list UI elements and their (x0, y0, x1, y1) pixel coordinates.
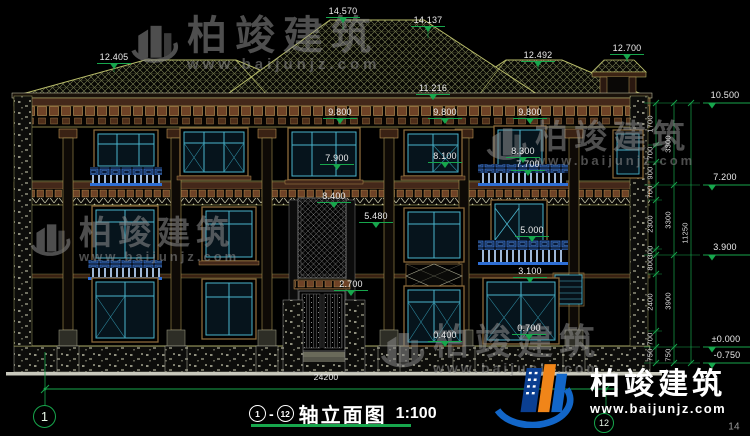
dimension-label: 24200 (314, 372, 339, 382)
window-3f-left (90, 130, 162, 186)
stair-window-lower (404, 286, 464, 346)
entrance-door (299, 291, 345, 351)
axis-bubble-1-label: 1 (41, 409, 48, 424)
title-scale: 1:100 (396, 405, 437, 423)
title-axis-from-bubble: 1 (249, 405, 266, 422)
brand-logo-icon (488, 356, 584, 428)
dimension-label: 9.800 (518, 107, 542, 117)
dimension-label: 0.700 (517, 323, 541, 333)
title-dash: - (269, 406, 274, 422)
window-2f-right (478, 200, 568, 265)
dimension-label: 2300 (646, 215, 655, 233)
dimension-label: 3300 (664, 211, 673, 229)
dimension-label: 10.500 (711, 90, 740, 100)
watermark-brand: 柏竣建筑 (535, 120, 695, 153)
watermark-url: www.baijunjz.com (535, 153, 695, 168)
dimension-label: 12.492 (524, 50, 553, 60)
watermark-right: 柏竣建筑 www.baijunjz.com (482, 120, 695, 168)
brand-watermark-icon (126, 16, 180, 70)
title-axis-to: 12 (280, 409, 289, 419)
dimension-label: 800 (646, 257, 655, 270)
dimension-label: 2.700 (339, 279, 363, 289)
dimension-label: 9.800 (328, 107, 352, 117)
pilasters (57, 129, 585, 372)
window-1f-left (92, 278, 158, 342)
window-3f-center (285, 128, 363, 184)
dimension-label: 700 (646, 185, 655, 198)
window-2f-left-center (199, 207, 259, 265)
cad-elevation-screenshot: 柏竣建筑 www.baijunjz.com 柏竣建筑 www.baijunjz.… (0, 0, 750, 436)
dimension-label: 3.100 (518, 266, 542, 276)
brand-watermark-icon (376, 324, 426, 374)
dimension-label: 700 (646, 332, 655, 345)
watermark-left: 柏竣建筑 www.baijunjz.com (26, 216, 239, 264)
chimney (592, 60, 646, 109)
title-axis-from: 1 (255, 409, 260, 419)
dimension-label: 900 (646, 166, 655, 179)
dimension-label: 7.700 (516, 159, 540, 169)
third-floor-windows (90, 126, 643, 186)
logo-url: www.baijunjz.com (590, 401, 726, 416)
entrance-lattice (298, 198, 346, 278)
watermark-brand: 柏竣建筑 (433, 324, 602, 360)
window-3f-far-right (613, 130, 643, 178)
watermark-url: www.baijunjz.com (79, 249, 239, 264)
dimension-label: 7.200 (713, 172, 737, 182)
dimension-label: 8.100 (433, 151, 457, 161)
dimension-label: ±0.000 (712, 334, 741, 344)
first-floor-windows (92, 278, 559, 346)
dimension-label: 1700 (646, 115, 655, 133)
dimension-label: 11250 (681, 222, 690, 243)
dimension-label: 0.400 (433, 330, 457, 340)
main-cornice (12, 93, 652, 127)
dimension-label: 14.570 (329, 6, 358, 16)
dimension-label: 7.900 (325, 153, 349, 163)
brand-watermark-icon (482, 120, 528, 166)
dimension-label: 14 (728, 422, 740, 433)
stair-window-upper (404, 208, 464, 288)
window-3f-left-center (177, 128, 251, 180)
balcony-door-3f-right (478, 126, 568, 186)
dimension-label: 3900 (664, 292, 673, 310)
watermark-top: 柏竣建筑 www.baijunjz.com (126, 16, 380, 73)
second-cornice (14, 181, 650, 205)
watermark-brand: 柏竣建筑 (79, 216, 239, 249)
dimension-label: 5.480 (364, 211, 388, 221)
entrance (283, 198, 365, 372)
brand-watermark-icon (26, 216, 72, 262)
vent-window (553, 273, 584, 306)
corner-pier-right (630, 96, 648, 346)
window-3f-right-center (401, 130, 465, 180)
axis-bubble-1: 1 (33, 405, 56, 428)
dimension-label: 12.405 (100, 52, 129, 62)
logo-brand: 柏竣建筑 (590, 368, 726, 401)
dimension-label: 3300 (664, 135, 673, 153)
window-1f-right (483, 278, 559, 344)
dimension-label: 8.300 (511, 146, 535, 156)
dimension-label: 3.900 (713, 242, 737, 252)
title-underline (251, 424, 411, 427)
roof (15, 20, 646, 96)
watermark-url: www.baijunjz.com (187, 56, 380, 73)
dimension-label: 700 (646, 146, 655, 159)
dimension-label: 300 (646, 245, 655, 258)
dimension-lines (41, 17, 700, 413)
dimension-label: 12.700 (613, 43, 642, 53)
second-floor-windows (88, 200, 584, 306)
dimension-label: 2400 (646, 293, 655, 311)
title-axis-to-bubble: 12 (277, 405, 294, 422)
dimension-label: 8.400 (322, 191, 346, 201)
dimension-label: 14.137 (414, 15, 443, 25)
dimension-label: 11.216 (419, 83, 447, 93)
corner-pier-left (14, 96, 32, 346)
watermark-brand: 柏竣建筑 (187, 16, 380, 56)
brand-logo: 柏竣建筑 www.baijunjz.com (488, 356, 726, 428)
dimension-label: 9.800 (433, 107, 457, 117)
sill-band (14, 274, 650, 278)
window-2f-left (88, 206, 162, 280)
dimension-label: 5.000 (520, 225, 544, 235)
window-1f-left-center (202, 279, 256, 339)
